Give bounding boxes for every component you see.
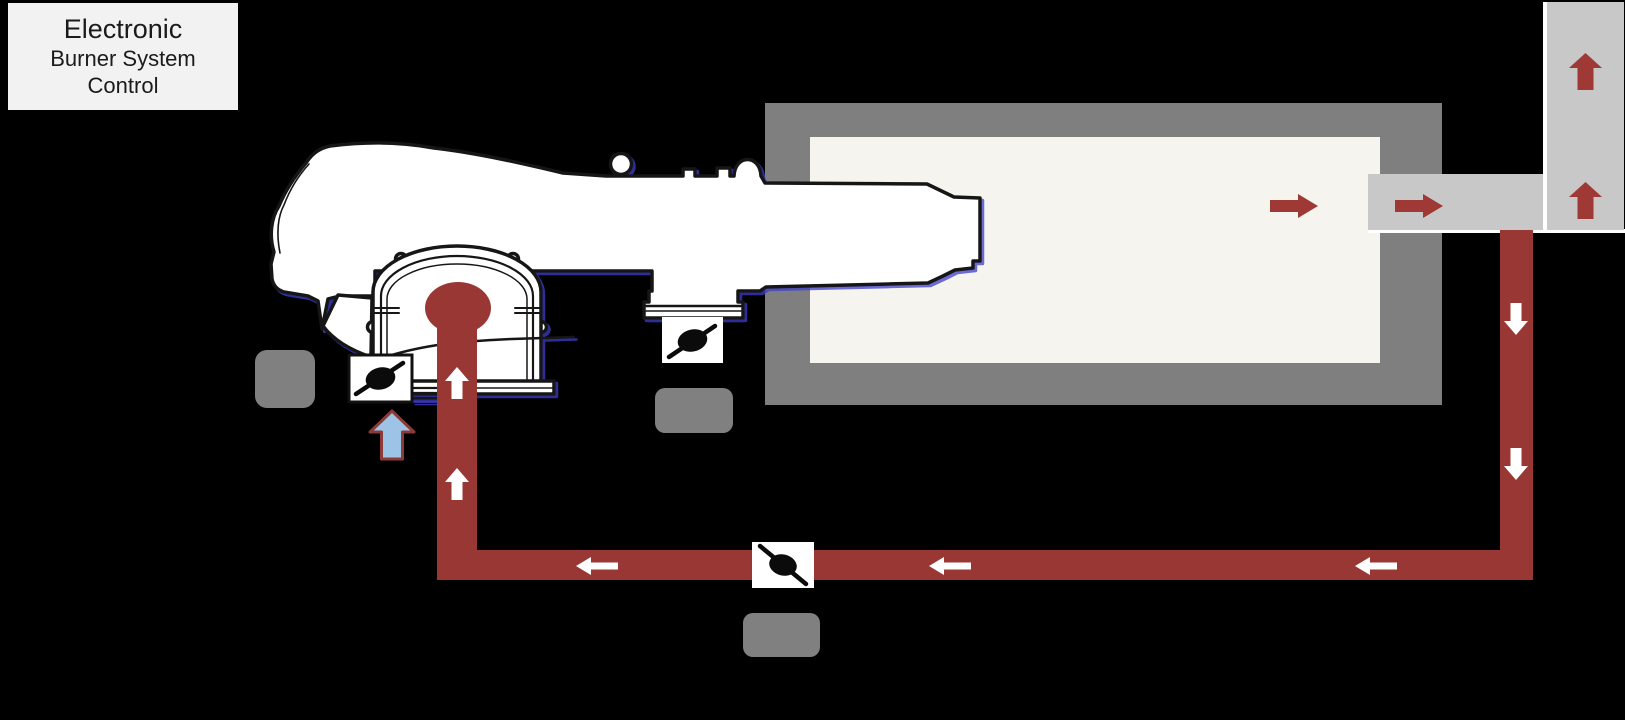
pipe-riser-left (437, 306, 477, 580)
title-line-3: Control (88, 73, 159, 100)
diagram-canvas (0, 0, 1625, 720)
burner-system-diagram: Electronic Burner System Control (0, 0, 1625, 720)
burner-gas-valve (662, 317, 723, 363)
lifting-ring (611, 154, 632, 175)
title-line-1: Electronic (64, 13, 183, 46)
air-inlet-arrow-up-icon (370, 411, 414, 459)
label-tags (255, 350, 820, 657)
supply-line-valve (752, 542, 814, 588)
stack-divider (1543, 2, 1547, 233)
title-line-2: Burner System (50, 46, 196, 73)
blank-label-tag (255, 350, 315, 408)
blank-label-tag (743, 613, 820, 657)
title-box: Electronic Burner System Control (8, 3, 238, 110)
flue-duct (1368, 174, 1543, 230)
pipe-downcomer-right (1500, 230, 1533, 580)
blower-hub (425, 282, 491, 334)
inlet-funnel (323, 295, 372, 357)
blower-inlet-valve (349, 355, 412, 402)
blank-label-tag (655, 388, 733, 433)
